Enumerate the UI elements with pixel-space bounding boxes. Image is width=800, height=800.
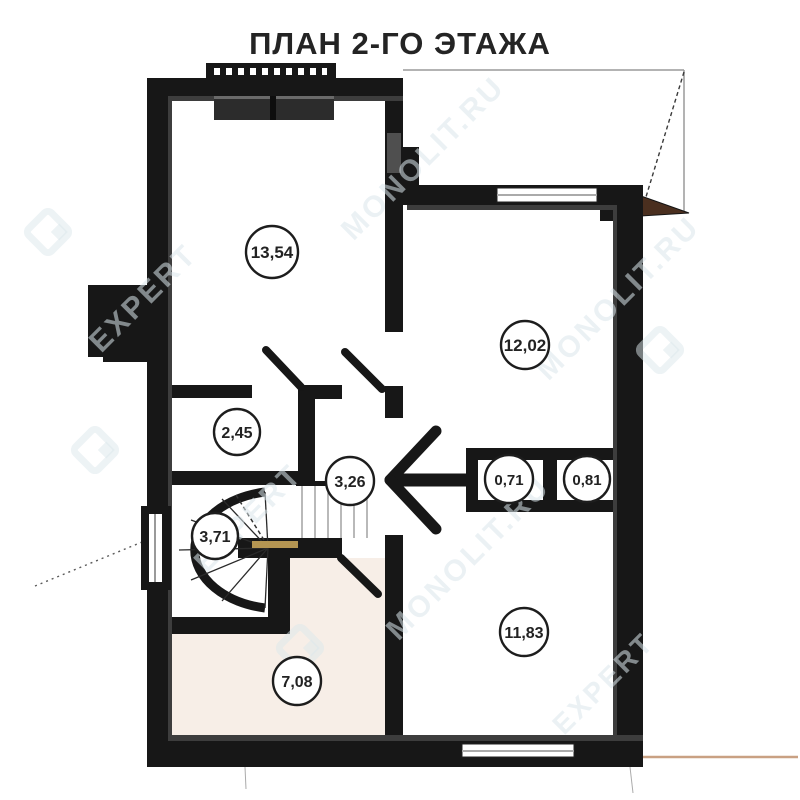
wall-face-top-right [407,205,613,210]
wall-lip [210,385,252,390]
door-leaf-13-54-2-45 [266,350,301,387]
entry-arrow-icon [390,431,470,529]
room-area-label-12-02: 12,02 [501,321,549,369]
watermark-logo-icon [72,427,117,472]
window-top-right-wing [497,188,597,202]
door-leaf-13-54-hall [345,352,382,389]
balcony-band [206,63,336,80]
outer-wall-top-left-wing [147,78,403,96]
tick-mark-bottom-left [245,767,246,789]
outer-wall-left [147,78,168,766]
floor-plan-drawing: MONOLIT.RU EXPERT MONOLIT.RU EXPERT MONO… [0,0,800,800]
window-left-wall [141,506,171,590]
room-area-label-7-08: 7,08 [273,657,321,705]
svg-text:3,71: 3,71 [199,529,230,546]
svg-text:12,02: 12,02 [504,336,547,355]
wall-stair-right [268,550,290,634]
room-area-label-3-71: 3,71 [192,513,238,559]
central-wall-mid-stub [385,386,403,418]
svg-text:7,08: 7,08 [281,674,312,691]
wall-2-45-hall [298,385,315,483]
wall-face-left [168,96,172,741]
window-glass-line-left [154,514,156,582]
roof-slope-dashed-line [642,72,684,210]
svg-text:3,26: 3,26 [334,474,365,491]
room-area-label-0-81: 0,81 [564,456,610,502]
sight-dotted-line-left [35,540,147,586]
watermark-logo-icon [637,327,682,372]
svg-text:2,45: 2,45 [221,425,252,442]
room-area-label-11-83: 11,83 [500,608,548,656]
watermark-logo-icon [25,209,70,254]
svg-text:11,83: 11,83 [504,625,543,642]
svg-text:0,81: 0,81 [572,472,601,489]
svg-text:0,71: 0,71 [494,472,523,489]
arrow-barb-top [390,431,436,480]
floor-plan-page: ПЛАН 2-ГО ЭТАЖА [0,0,800,800]
window-glass-line-bottom [462,750,574,752]
room-area-label-0-71: 0,71 [485,455,533,503]
tread-accent-strip [252,541,298,548]
window-mullion [270,96,276,120]
room-area-label-13-54: 13,54 [246,226,298,278]
watermark-text: EXPERT [546,626,660,740]
corner-block-top-right [600,185,643,221]
room-area-label-3-26: 3,26 [326,457,374,505]
arrow-barb-bottom [390,480,436,529]
window-bottom-wall [462,744,574,757]
wall-stair-bottom [152,617,288,634]
window-glass-line-top-right [497,194,597,196]
svg-text:13,54: 13,54 [251,243,294,262]
room-area-label-2-45: 2,45 [214,409,260,455]
tick-mark-bottom-right [630,767,633,793]
